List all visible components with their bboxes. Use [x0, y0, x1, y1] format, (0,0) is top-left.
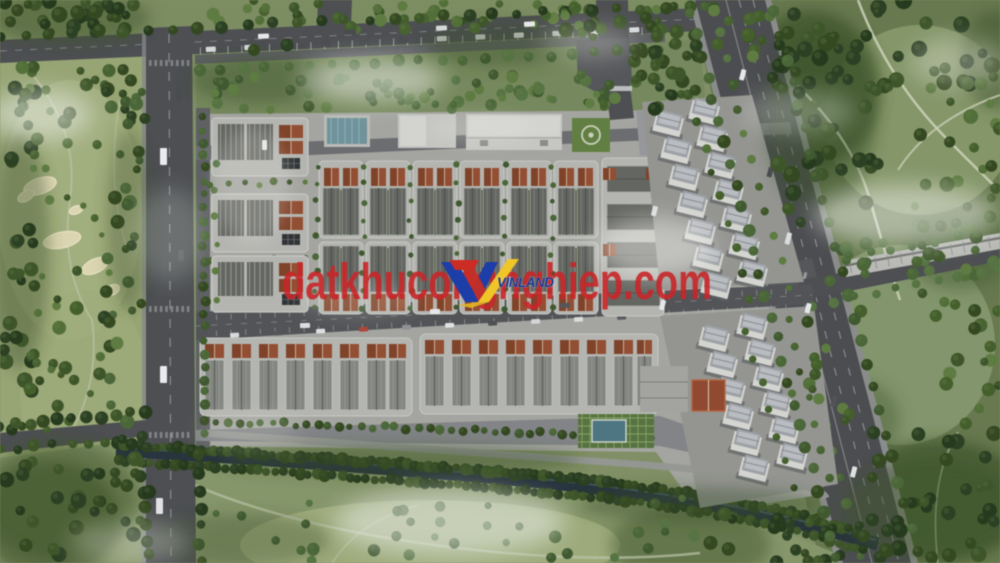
svg-text:VINLAND: VINLAND — [497, 275, 554, 290]
